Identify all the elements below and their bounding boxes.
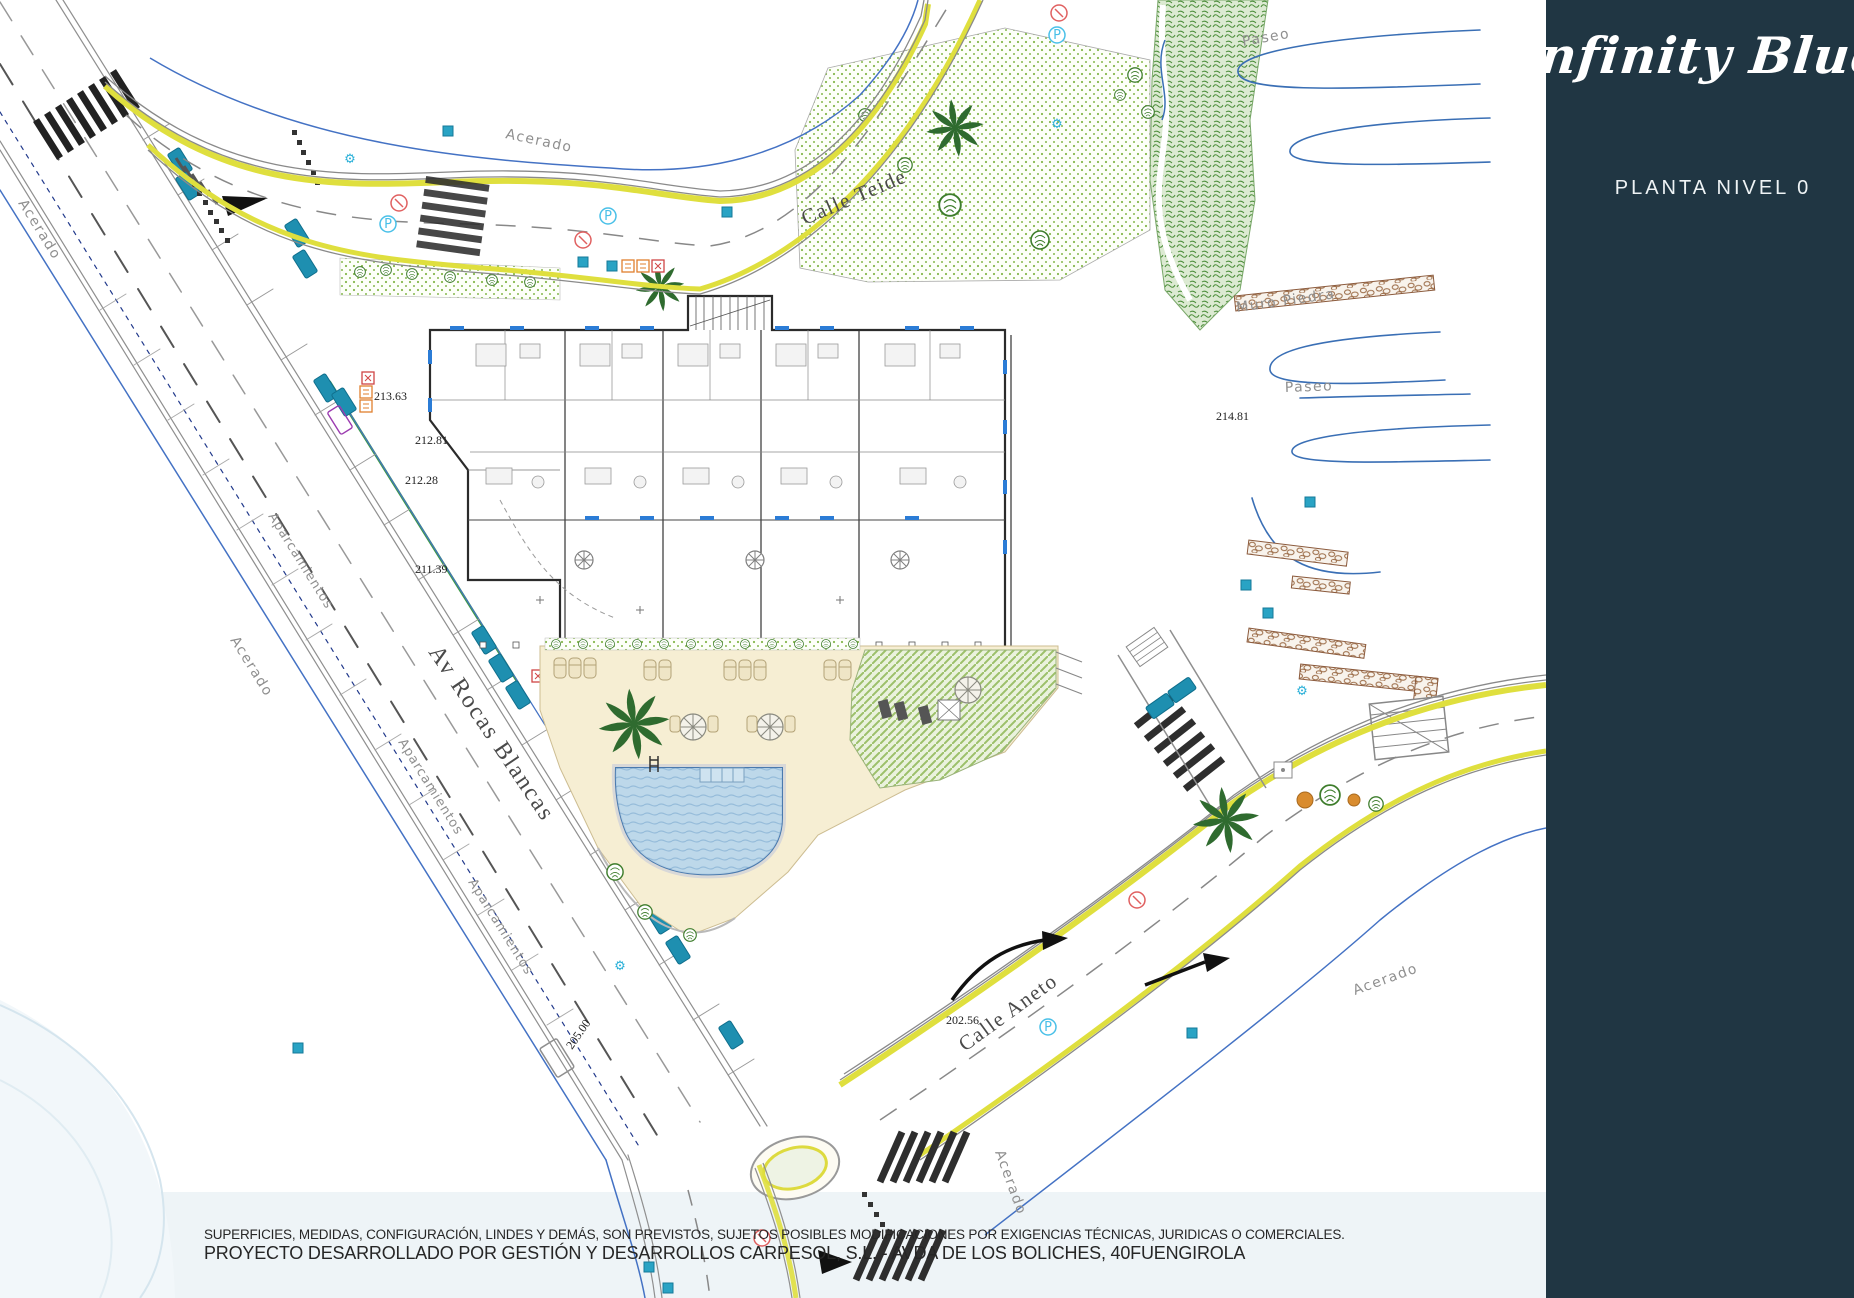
sidebar-panel: Infinity Blue PLANTA NIVEL 0 bbox=[1546, 0, 1854, 1298]
elevation-6: 205.00 bbox=[563, 1017, 593, 1052]
site-plan-drawing: P ⚙ bbox=[0, 0, 1546, 1298]
elevation-3: 212.28 bbox=[405, 473, 438, 487]
brand-logo: Infinity Blue bbox=[1513, 26, 1854, 85]
label-aparcamientos-2: Aparcamientos bbox=[395, 736, 466, 838]
page: P ⚙ bbox=[0, 0, 1854, 1298]
elevation-2: 212.81 bbox=[415, 433, 448, 447]
footer-line2: PROYECTO DESARROLLADO POR GESTIÓN Y DESA… bbox=[204, 1243, 1345, 1264]
elevation-1: 213.63 bbox=[374, 389, 407, 403]
label-acerado-2: Acerado bbox=[504, 126, 574, 156]
footer-line1: SUPERFICIES, MEDIDAS, CONFIGURACIÓN, LIN… bbox=[204, 1227, 1345, 1242]
label-paseo-2: Paseo bbox=[1285, 378, 1334, 396]
label-acerado-3: Acerado bbox=[227, 634, 277, 700]
plan-level-label: PLANTA NIVEL 0 bbox=[1589, 177, 1812, 200]
footer-disclaimer: SUPERFICIES, MEDIDAS, CONFIGURACIÓN, LIN… bbox=[204, 1227, 1345, 1264]
elevation-5: 214.81 bbox=[1216, 409, 1249, 423]
lawn-stipple-area bbox=[795, 28, 1150, 282]
elevation-4: 211.39 bbox=[415, 562, 448, 576]
dense-bush-area bbox=[1150, 0, 1268, 330]
green-areas bbox=[340, 0, 1268, 330]
stone-walls bbox=[1234, 275, 1448, 760]
building-complex bbox=[428, 296, 1011, 696]
street-trees-row bbox=[1274, 762, 1383, 811]
label-acerado-4: Acerado bbox=[1351, 960, 1420, 998]
elevation-7: 202.56 bbox=[946, 1013, 979, 1027]
pool-deck bbox=[540, 638, 1082, 941]
zebra-crossing-teide bbox=[416, 176, 489, 256]
deck-steps bbox=[1056, 652, 1082, 694]
